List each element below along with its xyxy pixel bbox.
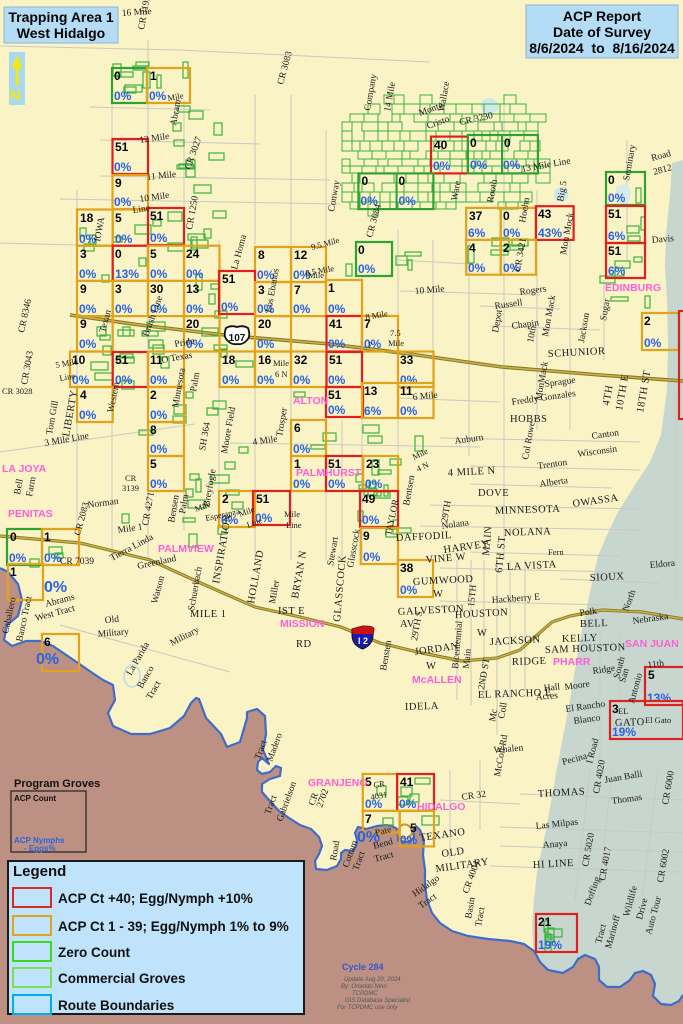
svg-text:13%: 13% bbox=[115, 267, 139, 281]
svg-text:West Hidalgo: West Hidalgo bbox=[17, 25, 105, 41]
svg-text:11: 11 bbox=[400, 384, 413, 398]
svg-text:McALLEN: McALLEN bbox=[412, 674, 462, 686]
svg-text:ACP Ct 1 - 39; Egg/Nymph 1% to: ACP Ct 1 - 39; Egg/Nymph 1% to 9% bbox=[58, 919, 289, 934]
svg-text:15TH: 15TH bbox=[467, 584, 479, 607]
svg-text:0%: 0% bbox=[150, 373, 168, 387]
svg-text:GRANJENO: GRANJENO bbox=[308, 777, 368, 789]
svg-text:9: 9 bbox=[80, 282, 87, 296]
svg-text:0%: 0% bbox=[44, 579, 67, 596]
svg-text:HIDALGO: HIDALGO bbox=[417, 801, 465, 813]
svg-text:0%: 0% bbox=[79, 408, 97, 422]
svg-text:7: 7 bbox=[365, 812, 372, 826]
svg-text:6%: 6% bbox=[608, 229, 626, 243]
svg-text:Route Boundaries: Route Boundaries bbox=[58, 998, 174, 1013]
svg-text:IST E: IST E bbox=[278, 606, 305, 617]
svg-text:32: 32 bbox=[294, 353, 308, 367]
svg-text:8/6/2024 to 8/16/2024: 8/6/2024 to 8/16/2024 bbox=[529, 40, 675, 56]
svg-text:18: 18 bbox=[222, 353, 236, 367]
svg-text:0%: 0% bbox=[362, 513, 380, 527]
svg-text:For TCPDMC use only: For TCPDMC use only bbox=[337, 1005, 398, 1011]
svg-text:1: 1 bbox=[328, 281, 335, 295]
svg-text:0%: 0% bbox=[257, 337, 275, 351]
svg-text:0: 0 bbox=[10, 530, 17, 544]
svg-text:6: 6 bbox=[44, 635, 51, 649]
svg-text:0%: 0% bbox=[293, 302, 311, 316]
svg-text:Line: Line bbox=[286, 520, 302, 530]
svg-text:6%: 6% bbox=[364, 404, 382, 418]
svg-text:0%: 0% bbox=[470, 158, 488, 172]
svg-text:18: 18 bbox=[80, 211, 94, 225]
svg-text:4: 4 bbox=[469, 241, 476, 255]
svg-text:RIDGE: RIDGE bbox=[512, 656, 547, 668]
svg-text:0: 0 bbox=[358, 243, 365, 257]
svg-text:41: 41 bbox=[329, 317, 343, 331]
svg-text:Davis: Davis bbox=[651, 234, 674, 246]
svg-text:Commercial Groves: Commercial Groves bbox=[58, 971, 186, 986]
svg-text:0%: 0% bbox=[644, 336, 662, 350]
svg-text:0%: 0% bbox=[358, 262, 376, 276]
svg-text:0%: 0% bbox=[36, 651, 59, 668]
svg-text:0%: 0% bbox=[400, 833, 418, 847]
svg-text:23: 23 bbox=[366, 457, 380, 471]
svg-text:49: 49 bbox=[362, 492, 376, 506]
svg-text:40: 40 bbox=[434, 138, 448, 152]
svg-text:EDINBURG: EDINBURG bbox=[605, 282, 661, 294]
svg-text:0%: 0% bbox=[222, 373, 240, 387]
svg-text:1: 1 bbox=[150, 69, 157, 83]
svg-text:0%: 0% bbox=[150, 231, 168, 245]
svg-text:51: 51 bbox=[328, 388, 342, 402]
svg-text:SIOUX: SIOUX bbox=[590, 571, 625, 584]
svg-text:0%: 0% bbox=[186, 302, 204, 316]
svg-text:0%: 0% bbox=[150, 267, 168, 281]
svg-text:51: 51 bbox=[256, 492, 270, 506]
svg-text:Mile: Mile bbox=[273, 358, 289, 368]
svg-text:MISSION: MISSION bbox=[280, 618, 324, 630]
svg-text:Date of Survey: Date of Survey bbox=[553, 24, 651, 40]
svg-text:ALTON: ALTON bbox=[293, 395, 328, 407]
svg-text:0%: 0% bbox=[114, 89, 132, 103]
svg-text:1: 1 bbox=[44, 530, 51, 544]
svg-text:Update Aug 20, 2024: Update Aug 20, 2024 bbox=[344, 977, 401, 983]
svg-text:13: 13 bbox=[364, 384, 378, 398]
svg-text:SAN JUAN: SAN JUAN bbox=[625, 638, 679, 650]
svg-text:0: 0 bbox=[362, 174, 369, 188]
svg-text:51: 51 bbox=[608, 207, 622, 221]
svg-text:2: 2 bbox=[222, 492, 229, 506]
svg-text:0%: 0% bbox=[79, 267, 97, 281]
svg-text:GATO: GATO bbox=[615, 717, 645, 729]
svg-text:3: 3 bbox=[258, 283, 265, 297]
svg-text:16: 16 bbox=[258, 353, 272, 367]
svg-text:51: 51 bbox=[329, 353, 343, 367]
svg-text:0%: 0% bbox=[114, 160, 132, 174]
svg-text:El Gato: El Gato bbox=[645, 715, 671, 725]
svg-text:0%: 0% bbox=[221, 300, 239, 314]
svg-text:6%: 6% bbox=[608, 264, 626, 278]
svg-text:43%: 43% bbox=[538, 226, 562, 240]
svg-text:0%: 0% bbox=[79, 337, 97, 351]
svg-text:Mile: Mile bbox=[284, 509, 300, 519]
svg-text:RD: RD bbox=[296, 639, 312, 650]
svg-text:0%: 0% bbox=[114, 195, 132, 209]
svg-text:20: 20 bbox=[258, 317, 272, 331]
svg-text:0%: 0% bbox=[328, 403, 346, 417]
svg-text:3: 3 bbox=[80, 247, 87, 261]
svg-text:37: 37 bbox=[469, 209, 483, 223]
svg-text:PALMHURST: PALMHURST bbox=[296, 467, 362, 479]
svg-text:7: 7 bbox=[294, 283, 301, 297]
svg-text:7.5: 7.5 bbox=[390, 328, 401, 338]
svg-text:33: 33 bbox=[400, 353, 414, 367]
svg-text:0%: 0% bbox=[293, 477, 311, 491]
svg-text:4: 4 bbox=[80, 388, 87, 402]
svg-text:5: 5 bbox=[150, 247, 157, 261]
svg-text:5: 5 bbox=[115, 211, 122, 225]
svg-text:PALMVIEW: PALMVIEW bbox=[158, 543, 214, 555]
svg-text:Cycle 284: Cycle 284 bbox=[342, 962, 384, 972]
svg-text:30: 30 bbox=[150, 282, 164, 296]
svg-text:0%: 0% bbox=[363, 550, 381, 564]
svg-text:0%: 0% bbox=[468, 261, 486, 275]
svg-text:W: W bbox=[477, 628, 487, 639]
svg-text:51: 51 bbox=[222, 272, 236, 286]
svg-text:5: 5 bbox=[150, 457, 157, 471]
svg-text:0%: 0% bbox=[115, 232, 133, 246]
svg-text:Mile: Mile bbox=[388, 338, 404, 348]
svg-text:0: 0 bbox=[114, 69, 121, 83]
svg-text:0%: 0% bbox=[400, 404, 418, 418]
svg-text:I 2: I 2 bbox=[358, 636, 368, 646]
svg-text:2: 2 bbox=[503, 241, 510, 255]
svg-text:Old: Old bbox=[104, 615, 119, 626]
svg-text:CR 3028: CR 3028 bbox=[2, 386, 32, 396]
svg-text:6: 6 bbox=[294, 421, 301, 435]
svg-text:EL: EL bbox=[618, 706, 628, 716]
svg-text:51: 51 bbox=[115, 140, 129, 154]
svg-text:0%: 0% bbox=[79, 302, 97, 316]
svg-text:0%: 0% bbox=[328, 477, 346, 491]
svg-text:0%: 0% bbox=[608, 191, 626, 205]
svg-text:MILE 1: MILE 1 bbox=[190, 609, 227, 620]
svg-text:0%: 0% bbox=[328, 302, 346, 316]
svg-text:21: 21 bbox=[538, 915, 552, 929]
svg-text:43: 43 bbox=[538, 207, 552, 221]
svg-text:0%: 0% bbox=[150, 408, 168, 422]
svg-text:MINNESOTA: MINNESOTA bbox=[495, 504, 561, 517]
svg-text:ACP Ct +40; Egg/Nymph +10%: ACP Ct +40; Egg/Nymph +10% bbox=[58, 891, 253, 906]
svg-text:CR: CR bbox=[373, 778, 386, 790]
svg-text:2: 2 bbox=[644, 314, 651, 328]
svg-text:Fern: Fern bbox=[548, 547, 564, 557]
svg-text:20: 20 bbox=[186, 317, 200, 331]
svg-text:107: 107 bbox=[229, 333, 246, 344]
svg-text:Legend: Legend bbox=[13, 863, 66, 880]
svg-text:0: 0 bbox=[503, 209, 510, 223]
svg-text:38: 38 bbox=[400, 561, 414, 575]
svg-text:0: 0 bbox=[504, 136, 511, 150]
svg-text:DOVE: DOVE bbox=[478, 488, 509, 499]
svg-text:0%: 0% bbox=[149, 89, 167, 103]
svg-text:PENITAS: PENITAS bbox=[8, 508, 53, 520]
svg-text:0%: 0% bbox=[433, 159, 451, 173]
svg-text:Main: Main bbox=[462, 648, 474, 669]
svg-text:W: W bbox=[426, 661, 436, 672]
svg-text:24: 24 bbox=[186, 247, 200, 261]
svg-text:41: 41 bbox=[400, 775, 414, 789]
svg-text:2: 2 bbox=[150, 388, 157, 402]
svg-text:LA JOYA: LA JOYA bbox=[2, 463, 47, 475]
svg-text:Zero Count: Zero Count bbox=[58, 945, 130, 960]
svg-text:3: 3 bbox=[115, 282, 122, 296]
svg-text:- Eggs%: - Eggs% bbox=[24, 844, 56, 853]
svg-text:Mile: Mile bbox=[308, 270, 324, 280]
svg-text:0%: 0% bbox=[150, 477, 168, 491]
svg-text:NOLANA: NOLANA bbox=[504, 526, 552, 539]
svg-text:N: N bbox=[10, 87, 21, 104]
svg-text:7: 7 bbox=[368, 340, 372, 350]
svg-text:ACP Report: ACP Report bbox=[563, 8, 642, 24]
svg-text:0%: 0% bbox=[328, 373, 346, 387]
svg-text:1: 1 bbox=[10, 565, 17, 579]
svg-text:IDELA: IDELA bbox=[405, 701, 439, 713]
svg-text:Trapping Area 1: Trapping Area 1 bbox=[8, 9, 114, 25]
svg-text:0%: 0% bbox=[365, 477, 383, 491]
svg-text:0: 0 bbox=[608, 173, 615, 187]
svg-text:0: 0 bbox=[470, 136, 477, 150]
svg-text:Acres: Acres bbox=[535, 691, 558, 703]
svg-text:0%: 0% bbox=[257, 373, 275, 387]
svg-text:13: 13 bbox=[186, 282, 200, 296]
svg-text:51: 51 bbox=[150, 209, 164, 223]
svg-text:W: W bbox=[433, 589, 443, 600]
svg-text:3139: 3139 bbox=[122, 483, 139, 493]
svg-text:0: 0 bbox=[399, 174, 406, 188]
svg-text:ACP Count: ACP Count bbox=[14, 794, 56, 803]
svg-text:Program Groves: Program Groves bbox=[14, 778, 100, 790]
svg-text:9: 9 bbox=[115, 176, 122, 190]
svg-text:0%: 0% bbox=[364, 337, 382, 351]
svg-text:6 N: 6 N bbox=[275, 369, 288, 379]
svg-text:TCPDMC: TCPDMC bbox=[352, 991, 378, 997]
svg-text:GIS Database Specialist: GIS Database Specialist bbox=[345, 998, 410, 1004]
svg-text:CR: CR bbox=[125, 473, 137, 483]
svg-text:12: 12 bbox=[294, 248, 308, 262]
svg-text:51: 51 bbox=[608, 244, 622, 258]
svg-text:BELL: BELL bbox=[580, 618, 609, 630]
svg-text:0%: 0% bbox=[293, 442, 311, 456]
svg-text:13%: 13% bbox=[647, 691, 671, 705]
svg-text:PHARR: PHARR bbox=[553, 656, 591, 668]
svg-text:HI LINE: HI LINE bbox=[533, 858, 575, 871]
svg-text:By: Orlando Nino: By: Orlando Nino bbox=[341, 984, 387, 990]
svg-text:6%: 6% bbox=[468, 226, 486, 240]
svg-text:51: 51 bbox=[115, 353, 129, 367]
svg-text:8: 8 bbox=[258, 248, 265, 262]
svg-text:0%: 0% bbox=[399, 194, 417, 208]
svg-text:CR 7039: CR 7039 bbox=[60, 557, 94, 567]
svg-text:19%: 19% bbox=[538, 938, 562, 952]
svg-text:0%: 0% bbox=[186, 267, 204, 281]
svg-text:0%: 0% bbox=[503, 158, 521, 172]
svg-text:0%: 0% bbox=[399, 797, 417, 811]
svg-text:8: 8 bbox=[150, 423, 157, 437]
svg-text:9: 9 bbox=[363, 529, 370, 543]
svg-text:0%: 0% bbox=[293, 373, 311, 387]
svg-text:0%: 0% bbox=[115, 302, 133, 316]
svg-text:0%: 0% bbox=[150, 442, 168, 456]
svg-text:0%: 0% bbox=[328, 337, 346, 351]
svg-text:0: 0 bbox=[115, 247, 122, 261]
svg-text:9: 9 bbox=[80, 317, 87, 331]
